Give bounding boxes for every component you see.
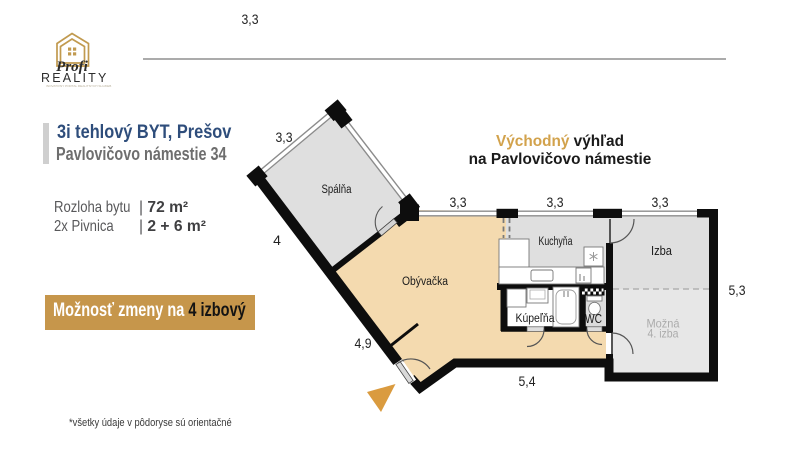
- svg-text:Spálňa: Spálňa: [322, 184, 353, 196]
- svg-text:Obývačka: Obývačka: [402, 276, 449, 288]
- svg-text:Izba: Izba: [651, 244, 672, 258]
- svg-text:3,3: 3,3: [242, 11, 259, 27]
- svg-text:3,3: 3,3: [450, 194, 467, 210]
- svg-text:5,3: 5,3: [729, 282, 746, 298]
- svg-text:3,3: 3,3: [276, 129, 293, 145]
- svg-text:3,3: 3,3: [652, 194, 669, 210]
- svg-text:4. izba: 4. izba: [648, 327, 679, 341]
- svg-text:Kuchyňa: Kuchyňa: [539, 236, 573, 248]
- svg-text:4: 4: [273, 232, 281, 248]
- svg-text:5,4: 5,4: [519, 373, 536, 389]
- svg-text:3,3: 3,3: [547, 194, 564, 210]
- svg-text:WC: WC: [585, 312, 602, 326]
- svg-text:Kúpeľňa: Kúpeľňa: [516, 313, 556, 325]
- svg-text:4,9: 4,9: [355, 335, 372, 351]
